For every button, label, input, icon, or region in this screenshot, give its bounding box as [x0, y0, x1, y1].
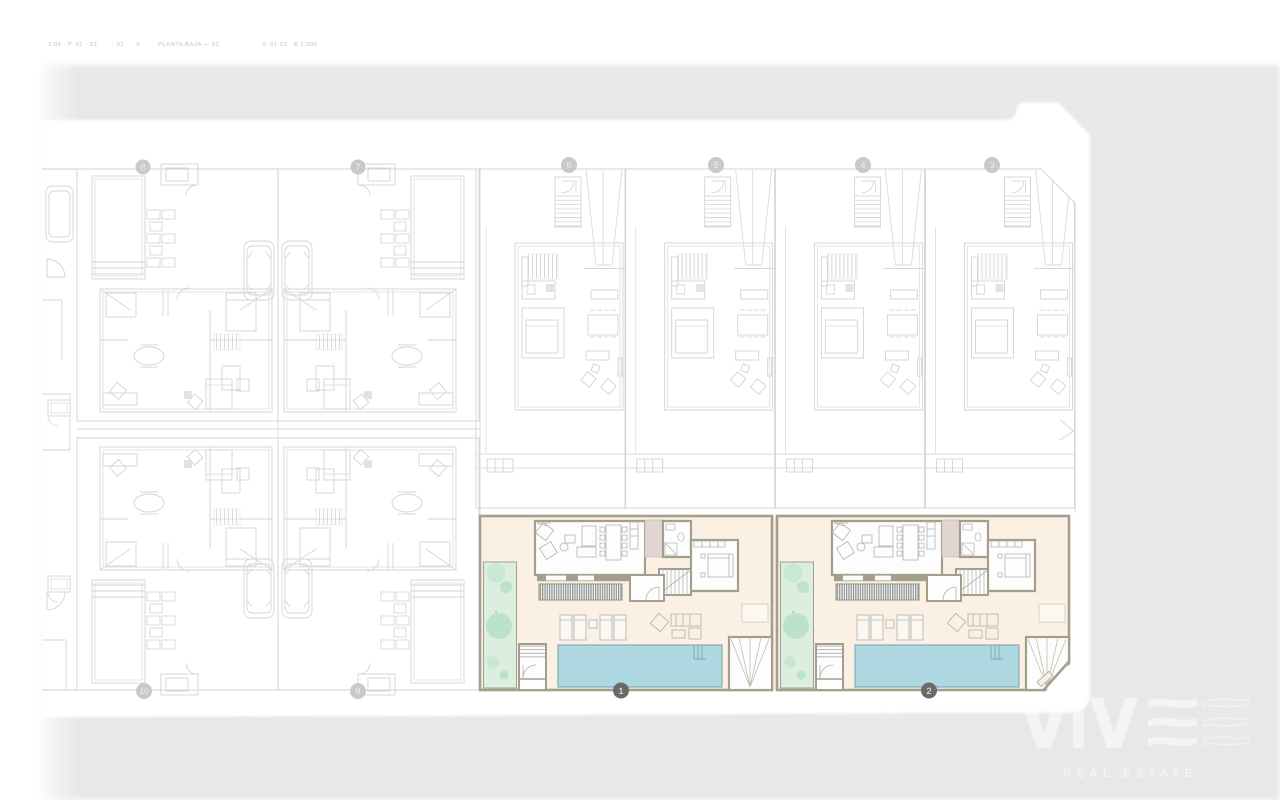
svg-text:10: 10 — [140, 687, 149, 696]
svg-text:8: 8 — [140, 162, 145, 172]
svg-text:V. 01·02 · E 1:200: V. 01·02 · E 1:200 — [262, 41, 318, 48]
svg-text:2.04 · P. 01 · S1: 2.04 · P. 01 · S1 — [48, 41, 98, 48]
svg-text:1: 1 — [618, 686, 623, 696]
svg-text:REAL ESTATE: REAL ESTATE — [1063, 766, 1197, 780]
svg-text:4: 4 — [860, 160, 865, 170]
svg-text:5: 5 — [713, 160, 718, 170]
svg-text:7: 7 — [355, 162, 360, 172]
svg-text:2: 2 — [926, 686, 931, 696]
svg-text:6: 6 — [566, 160, 571, 170]
svg-text:· 02: · 02 — [112, 41, 124, 48]
svg-text:PLANTA BAJA — 02: PLANTA BAJA — 02 — [158, 41, 220, 48]
svg-text:3: 3 — [989, 160, 994, 170]
svg-text:A: A — [136, 41, 140, 48]
svg-text:9: 9 — [355, 686, 360, 696]
